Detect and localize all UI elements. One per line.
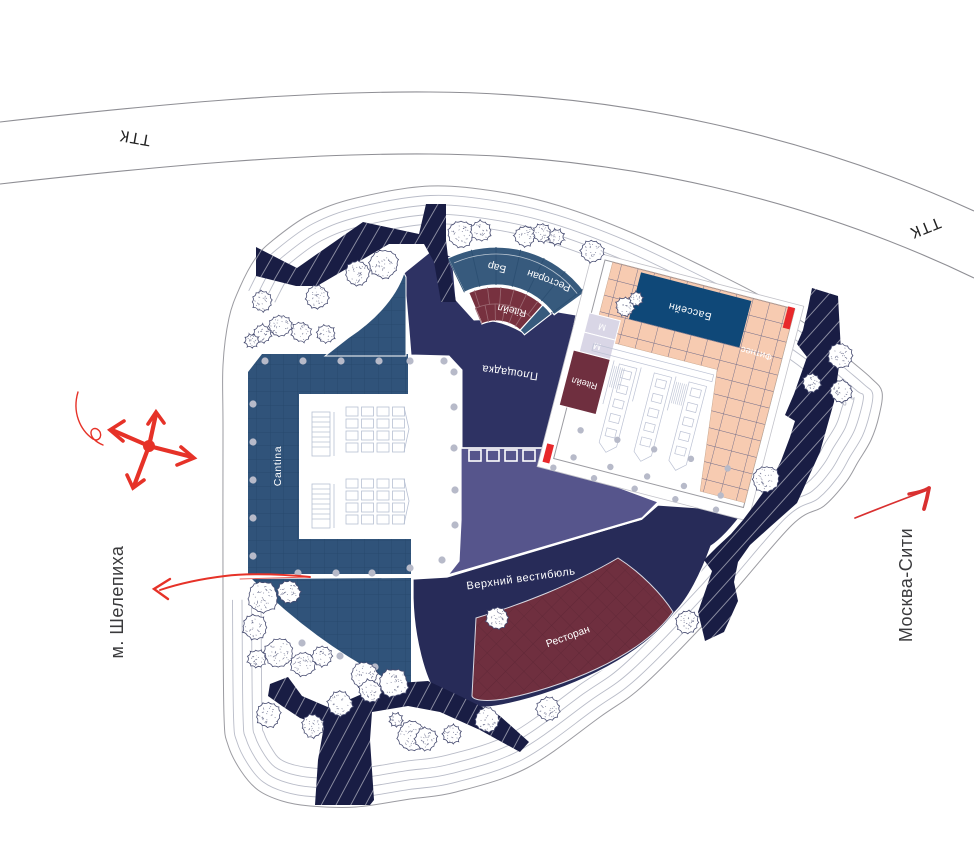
svg-text:м. Шелепиха: м. Шелепиха [107,545,127,658]
svg-text:Москва-Сити: Москва-Сити [896,528,916,642]
svg-text:Cantina: Cantina [272,446,284,486]
